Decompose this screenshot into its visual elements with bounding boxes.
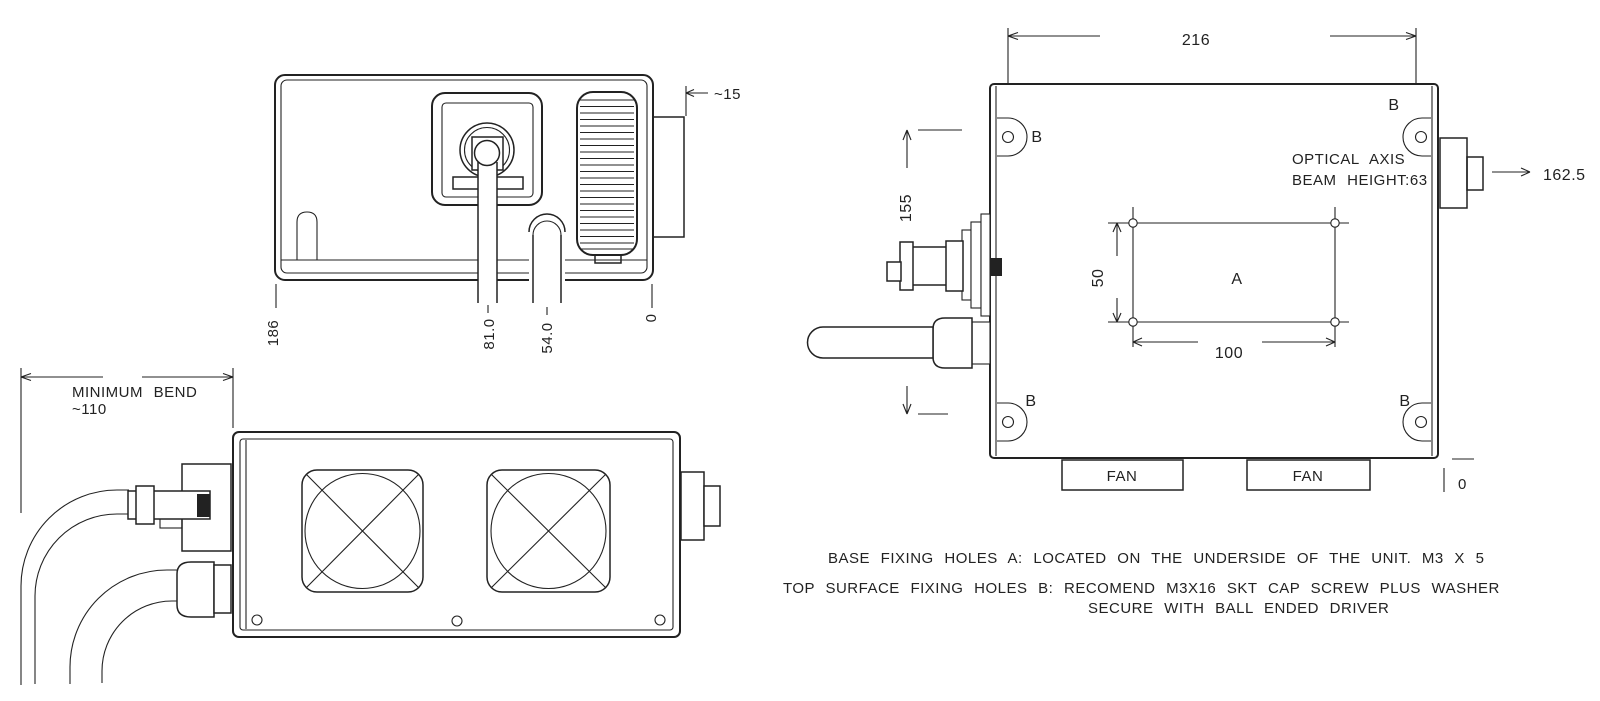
fiber-output-port — [432, 93, 542, 303]
base-hole-4 — [1331, 318, 1339, 326]
side-connector-nut — [946, 241, 963, 291]
side-view: 216 155 B B B B OPTICA — [807, 28, 1585, 493]
dim-162-5-arrow — [1492, 168, 1530, 176]
base-hole-3 — [1129, 318, 1137, 326]
base-hole-2 — [1331, 219, 1339, 227]
front-left-slot — [297, 212, 317, 260]
heatsink-foot — [595, 255, 621, 263]
side-strain-relief-boot — [933, 318, 972, 368]
drawing-notes: BASE FIXING HOLES A: LOCATED ON THE UNDE… — [783, 550, 1500, 617]
dim-flange-offset: ~15 — [686, 86, 741, 116]
technical-drawing-canvas: ~15 186 81.0 54.0 0 MINIMUM BEND ~110 — [0, 0, 1600, 701]
strain-relief-collar — [214, 565, 231, 613]
dim-flange-lines — [686, 86, 708, 116]
optical-axis-line1: OPTICAL AXIS — [1292, 151, 1405, 168]
front-bottom-dims: 186 81.0 54.0 0 — [265, 284, 660, 354]
dim-50-label: 50 — [1090, 269, 1107, 288]
dim-81-label: 81.0 — [481, 318, 498, 349]
side-cable-stub — [807, 327, 933, 358]
dim-0-datum-label: 0 — [1458, 476, 1467, 493]
fan-label-left: FAN — [1107, 468, 1138, 485]
optical-axis-line2: BEAM HEIGHT:63 — [1292, 172, 1428, 189]
side-connector-assembly — [807, 214, 1002, 368]
flange-plate-2 — [971, 222, 981, 308]
heatsink-fins — [580, 100, 634, 249]
power-cable-grommet — [529, 214, 565, 303]
side-connector-tip — [887, 262, 901, 281]
note-top-fixing-holes: TOP SURFACE FIXING HOLES B: RECOMEND M3X… — [783, 580, 1500, 597]
fan-label-right: FAN — [1293, 468, 1324, 485]
side-fan-boxes: FAN FAN — [1062, 460, 1370, 490]
connector-thread — [197, 494, 210, 517]
side-connector-thread — [991, 258, 1002, 276]
fiber-connector-assembly — [128, 464, 231, 617]
drawing-page: ~15 186 81.0 54.0 0 MINIMUM BEND ~110 — [0, 0, 1600, 701]
dim-0-label: 0 — [643, 314, 660, 323]
side-strain-relief-collar — [972, 322, 990, 364]
top-right-connector — [681, 472, 720, 540]
dim-100-label: 100 — [1215, 345, 1243, 362]
heatsink — [577, 92, 637, 263]
side-right-connector-body — [1440, 138, 1467, 208]
dim-162-5-label: 162.5 — [1543, 167, 1586, 184]
flange-plate-1 — [981, 214, 990, 316]
port-ferrule — [475, 141, 500, 166]
hole-b-label-bottom-left: B — [1025, 393, 1036, 410]
note-base-fixing-holes: BASE FIXING HOLES A: LOCATED ON THE UNDE… — [828, 550, 1484, 567]
side-connector-ring — [900, 242, 913, 290]
fiber-cable-mask — [478, 160, 498, 303]
fiber-cable-inner — [35, 514, 129, 684]
dim-186-label: 186 — [265, 320, 282, 347]
connector-nut — [136, 486, 154, 524]
dim-0-datum: 0 — [1444, 459, 1474, 493]
grommet-mask — [529, 214, 565, 303]
dim-flange-label: ~15 — [714, 86, 741, 103]
top-right-connector-body — [681, 472, 704, 540]
front-view: ~15 186 81.0 54.0 0 — [265, 75, 741, 354]
mount-hole-bottom-left — [1003, 417, 1014, 428]
front-right-flange — [653, 117, 684, 237]
dim-54-label: 54.0 — [539, 322, 556, 353]
mount-hole-top-left — [1003, 132, 1014, 143]
min-bend-label: MINIMUM BEND — [72, 384, 197, 401]
dim-216-label: 216 — [1182, 32, 1210, 49]
power-cable-inner — [102, 601, 178, 683]
top-enclosure-outline — [233, 432, 680, 637]
base-hole-1 — [1129, 219, 1137, 227]
power-cable-outer — [70, 570, 178, 684]
strain-relief-boot — [177, 562, 214, 617]
min-bend-value: ~110 — [72, 401, 107, 418]
top-right-connector-tip — [704, 486, 720, 526]
note-top-fixing-holes-cont: SECURE WITH BALL ENDED DRIVER — [1088, 600, 1389, 617]
mount-hole-bottom-right — [1416, 417, 1427, 428]
hole-a-label: A — [1231, 271, 1242, 288]
side-enclosure-outline — [990, 84, 1438, 458]
fiber-cable-outer — [21, 490, 129, 685]
mount-hole-top-right — [1416, 132, 1427, 143]
hole-b-label-top-left: B — [1031, 129, 1042, 146]
top-view: MINIMUM BEND ~110 — [21, 368, 720, 685]
side-right-connector-tip — [1467, 157, 1483, 190]
dim-162-5: 162.5 — [1440, 138, 1586, 208]
hole-b-label-bottom-right: B — [1399, 393, 1410, 410]
hole-b-label-top-right: B — [1388, 97, 1399, 114]
dim-155-label: 155 — [898, 194, 915, 222]
